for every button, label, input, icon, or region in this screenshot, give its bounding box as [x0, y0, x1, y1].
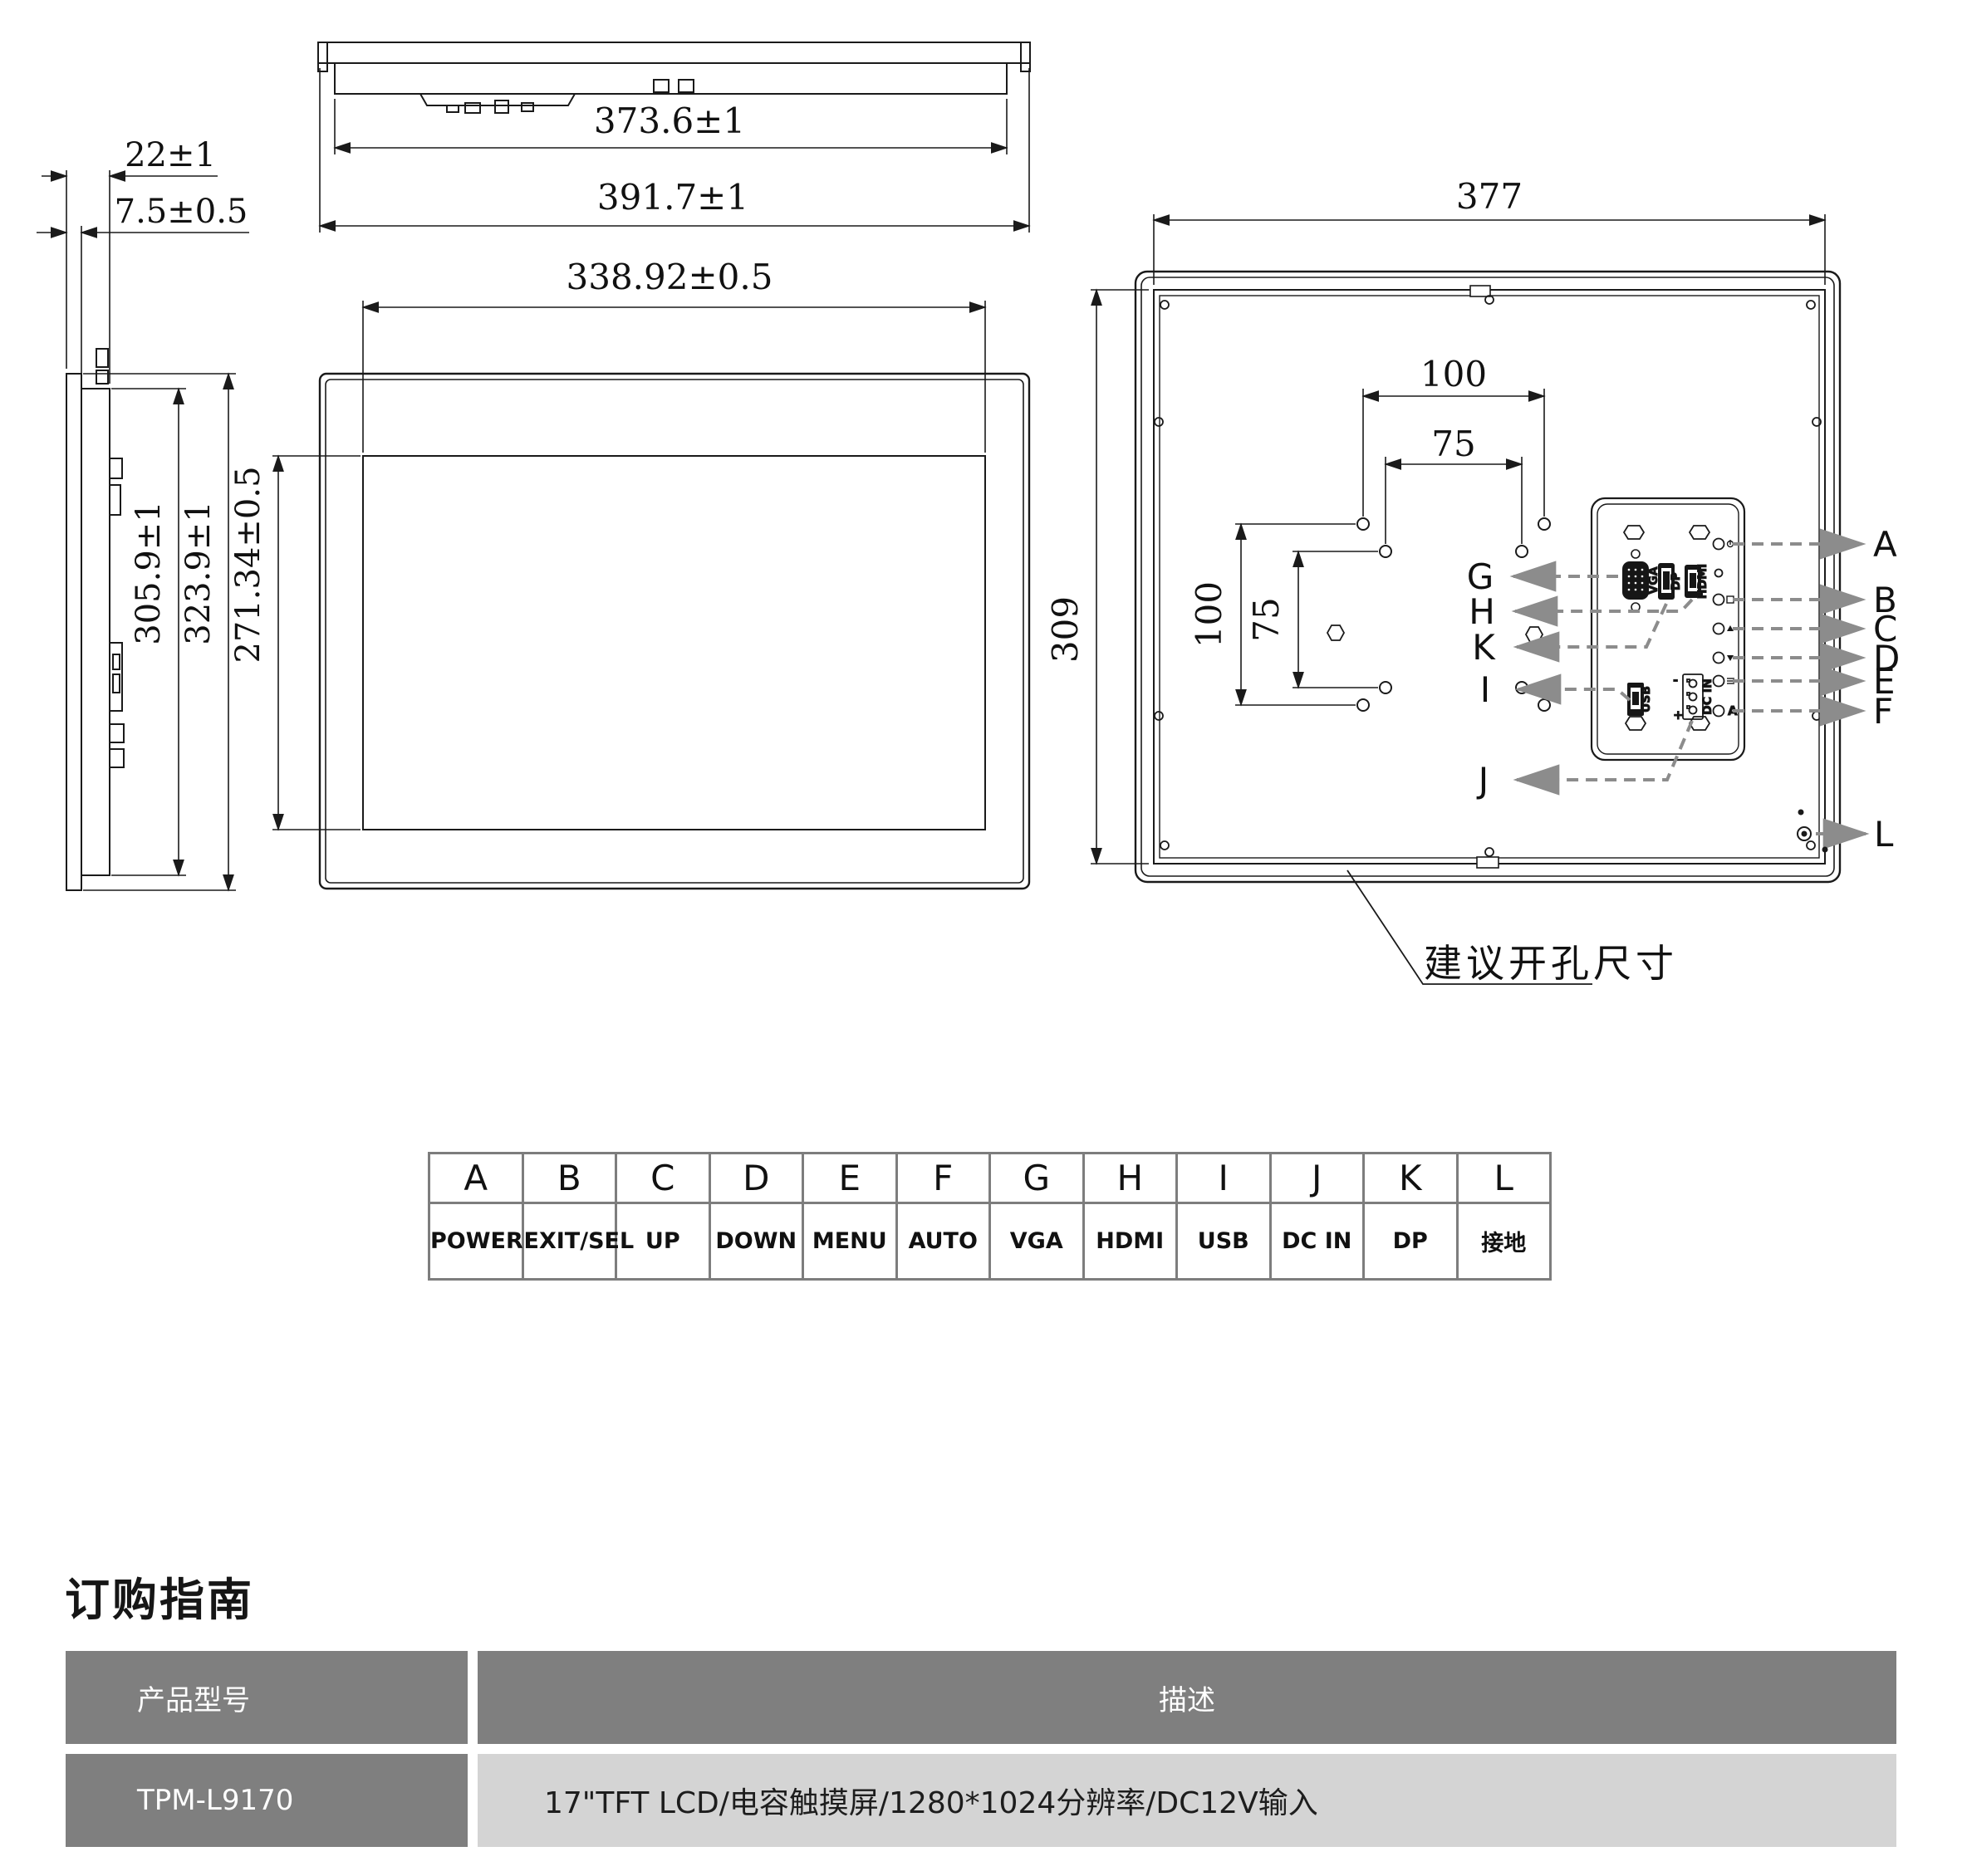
product-description: 17"TFT LCD/电容触摸屏/1280*1024分辨率/DC12V输入	[478, 1754, 1896, 1847]
top-view-front-glass	[318, 42, 1030, 63]
side-view-mount-clip	[96, 349, 108, 367]
rear-dimensions	[1091, 214, 1825, 864]
dim-height-active: 271.34±0.5	[229, 466, 267, 663]
legend-function: VGA	[990, 1203, 1084, 1280]
front-view-bezel-outer	[320, 374, 1029, 889]
dim-height-body: 305.9±1	[130, 501, 168, 644]
down-arrow-icon	[1727, 655, 1734, 661]
order-guide-header-row: 产品型号 描述	[66, 1651, 1896, 1744]
side-view-tab	[110, 724, 124, 742]
legend-function: DC IN	[1270, 1203, 1364, 1280]
hdmi-label: HDMI	[1696, 564, 1709, 599]
legend-letter: L	[1457, 1154, 1551, 1203]
power-button	[1714, 539, 1724, 550]
front-view-bezel-inner	[326, 380, 1023, 883]
dc-in-port	[1683, 674, 1703, 719]
side-view-tab	[110, 749, 124, 767]
dim-width-body: 373.6±1	[594, 100, 745, 141]
dim-vesa100-h: 100	[1420, 354, 1487, 394]
side-view-front-glass	[66, 374, 81, 890]
legend-table: A B C D E F G H I J K L POWER EXIT/SEL U…	[428, 1152, 1552, 1281]
up-button	[1714, 624, 1724, 634]
menu-button	[1714, 676, 1724, 687]
order-guide-col-desc: 描述	[478, 1651, 1896, 1744]
dim-width-total: 391.7±1	[597, 177, 748, 218]
usb-label: USB	[1640, 686, 1653, 713]
dim-rear-height: 309	[1045, 596, 1086, 663]
up-arrow-icon	[1727, 625, 1734, 631]
order-guide-data-row: TPM-L9170 17"TFT LCD/电容触摸屏/1280*1024分辨率/…	[66, 1754, 1896, 1847]
vga-label: VGA	[1647, 566, 1660, 594]
dc-minus: -	[1673, 673, 1678, 688]
legend-function: AUTO	[896, 1203, 990, 1280]
product-model: TPM-L9170	[66, 1754, 468, 1847]
legend-letter: K	[1364, 1154, 1458, 1203]
vesa-holes	[1357, 518, 1550, 711]
legend-letter: J	[1270, 1154, 1364, 1203]
cutout-notch-bottom	[1477, 857, 1499, 868]
osd-buttons	[1714, 539, 1724, 717]
exit-sel-button	[1714, 595, 1724, 605]
legend-function: USB	[1177, 1203, 1271, 1280]
technical-drawing: 373.6±1 391.7±1 338.92±0.5 22±1 7.5±0.5	[0, 0, 1967, 1046]
legend-function: DOWN	[709, 1203, 803, 1280]
dcin-label: DC IN	[1701, 678, 1714, 715]
legend-letter: F	[896, 1154, 990, 1203]
legend-function: POWER	[429, 1203, 523, 1280]
button-glyphs	[1727, 540, 1734, 683]
callout-i: I	[1480, 669, 1490, 710]
legend-function: DP	[1364, 1203, 1458, 1280]
hex-stud	[1526, 627, 1543, 642]
top-view-clip	[679, 80, 694, 92]
dim-height-total: 323.9±1	[179, 501, 218, 644]
front-view-active-area	[363, 456, 985, 830]
legend-function: HDMI	[1083, 1203, 1177, 1280]
top-view-clip	[654, 80, 669, 92]
legend-letter: C	[616, 1154, 710, 1203]
side-view-mount-clip	[96, 370, 108, 384]
auto-button	[1714, 706, 1724, 717]
down-button	[1714, 653, 1724, 664]
callout-l: L	[1874, 814, 1894, 855]
callout-h: H	[1469, 591, 1495, 632]
dim-vesa75-h: 75	[1431, 424, 1475, 464]
side-view-body	[81, 389, 110, 875]
legend-letter: D	[709, 1154, 803, 1203]
dim-width-active: 338.92±0.5	[567, 257, 773, 297]
legend-function: 接地	[1457, 1203, 1551, 1280]
legend-letter-row: A B C D E F G H I J K L	[429, 1154, 1551, 1203]
cutout-note-text: 建议开孔尺寸	[1424, 941, 1678, 986]
dim-vesa100-v: 100	[1189, 581, 1229, 648]
side-view	[66, 349, 124, 890]
hex-stud	[1327, 625, 1344, 640]
legend-letter: E	[803, 1154, 897, 1203]
dim-depth-total: 22±1	[125, 136, 216, 174]
callout-f: F	[1873, 691, 1893, 732]
legend-letter: H	[1083, 1154, 1177, 1203]
top-view-body	[335, 63, 1007, 94]
dim-vesa75-v: 75	[1246, 597, 1287, 641]
datasheet-page: 373.6±1 391.7±1 338.92±0.5 22±1 7.5±0.5	[0, 0, 1967, 1876]
dim-rear-width: 377	[1456, 176, 1523, 217]
legend-function: EXIT/SEL	[522, 1203, 616, 1280]
order-guide-col-model: 产品型号	[66, 1651, 468, 1744]
cutout-note: 建议开孔尺寸	[1347, 870, 1678, 986]
callout-k: K	[1472, 627, 1496, 668]
dc-plus: +	[1673, 708, 1684, 722]
connector-panel: A VGA DP HDMI USB DC IN + -	[1592, 498, 1744, 760]
legend-function: MENU	[803, 1203, 897, 1280]
cutout-notch-top	[1470, 286, 1490, 296]
order-guide-title: 订购指南	[65, 1563, 254, 1629]
legend-letter: I	[1177, 1154, 1271, 1203]
legend-letter: A	[429, 1154, 523, 1203]
dim-depth-front: 7.5±0.5	[115, 193, 248, 231]
legend-function-row: POWER EXIT/SEL UP DOWN MENU AUTO VGA HDM…	[429, 1203, 1551, 1280]
callout-j: J	[1476, 760, 1489, 801]
callout-a: A	[1873, 524, 1897, 565]
legend-letter: B	[522, 1154, 616, 1203]
ground-screw	[1798, 810, 1828, 853]
front-view	[320, 374, 1029, 889]
legend-letter: G	[990, 1154, 1084, 1203]
power-led	[1715, 570, 1723, 577]
dp-label: DP	[1670, 572, 1683, 590]
vga-port	[1622, 550, 1649, 611]
exit-sel-icon	[1727, 596, 1734, 603]
